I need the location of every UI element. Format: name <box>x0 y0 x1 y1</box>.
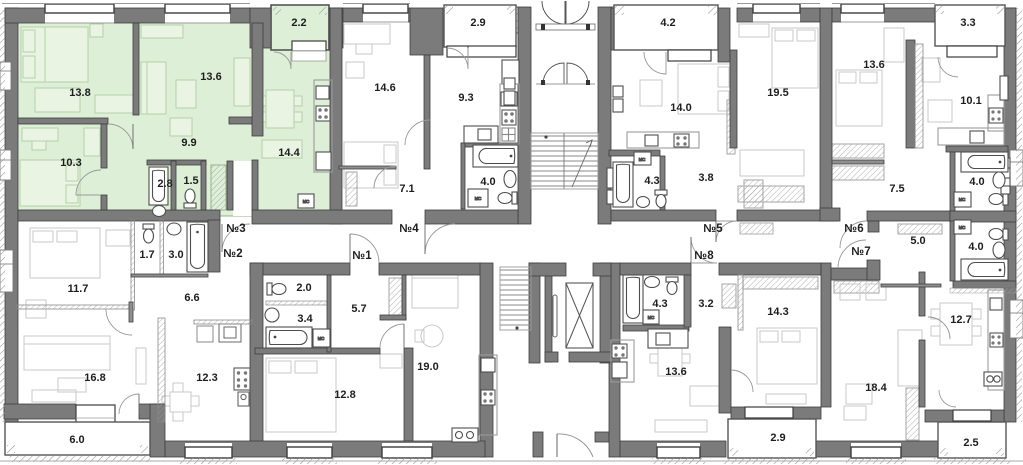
svg-text:10.3: 10.3 <box>60 157 81 169</box>
svg-text:№7: №7 <box>851 246 870 258</box>
svg-text:19.5: 19.5 <box>767 87 788 99</box>
svg-text:МС: МС <box>648 315 655 320</box>
svg-text:МС: МС <box>959 197 966 202</box>
svg-text:1.7: 1.7 <box>139 249 154 261</box>
svg-text:6.6: 6.6 <box>184 292 199 304</box>
svg-text:4.0: 4.0 <box>969 176 984 188</box>
svg-text:13.6: 13.6 <box>200 71 221 83</box>
svg-text:№8: №8 <box>694 250 714 262</box>
svg-text:11.7: 11.7 <box>68 283 89 295</box>
svg-text:2.0: 2.0 <box>296 282 311 294</box>
svg-text:МС: МС <box>303 199 310 204</box>
svg-text:7.5: 7.5 <box>889 183 904 195</box>
svg-text:14.4: 14.4 <box>278 147 300 159</box>
svg-text:12.7: 12.7 <box>950 314 971 326</box>
svg-text:3.2: 3.2 <box>698 298 713 310</box>
svg-text:2.8: 2.8 <box>157 178 172 190</box>
svg-text:9.3: 9.3 <box>458 92 473 104</box>
svg-text:МС: МС <box>318 336 325 341</box>
svg-text:14.3: 14.3 <box>767 306 788 318</box>
svg-text:4.0: 4.0 <box>480 176 495 188</box>
svg-text:19.0: 19.0 <box>417 361 438 373</box>
svg-text:№3: №3 <box>226 223 245 235</box>
svg-text:13.6: 13.6 <box>665 366 686 378</box>
svg-text:МС: МС <box>475 196 482 201</box>
svg-text:4.3: 4.3 <box>644 175 659 187</box>
svg-text:№6: №6 <box>844 223 863 235</box>
svg-text:3.8: 3.8 <box>698 172 713 184</box>
svg-text:2.2: 2.2 <box>291 17 306 29</box>
svg-text:18.4: 18.4 <box>865 382 887 394</box>
svg-text:14.0: 14.0 <box>670 102 691 114</box>
svg-text:7.1: 7.1 <box>399 183 414 195</box>
svg-text:13.6: 13.6 <box>863 59 884 71</box>
svg-text:9.9: 9.9 <box>181 137 196 149</box>
svg-text:№2: №2 <box>223 248 242 260</box>
svg-text:5.0: 5.0 <box>910 235 925 247</box>
svg-text:4.3: 4.3 <box>652 298 667 310</box>
svg-text:2.9: 2.9 <box>470 17 485 29</box>
svg-text:МС: МС <box>959 225 966 230</box>
svg-text:4.0: 4.0 <box>968 241 983 253</box>
svg-text:5.7: 5.7 <box>351 303 366 315</box>
svg-text:14.6: 14.6 <box>374 82 395 94</box>
svg-text:2.9: 2.9 <box>770 432 785 444</box>
svg-text:13.8: 13.8 <box>69 87 90 99</box>
svg-text:1.5: 1.5 <box>183 175 198 187</box>
svg-text:2.5: 2.5 <box>963 437 978 449</box>
svg-text:№5: №5 <box>703 223 723 235</box>
svg-text:3.0: 3.0 <box>168 249 183 261</box>
svg-text:3.3: 3.3 <box>960 17 975 29</box>
svg-text:10.1: 10.1 <box>960 95 981 107</box>
svg-text:16.8: 16.8 <box>84 372 105 384</box>
svg-text:4.2: 4.2 <box>660 17 675 29</box>
svg-text:3.4: 3.4 <box>297 313 313 325</box>
svg-text:№1: №1 <box>352 250 372 262</box>
svg-text:12.8: 12.8 <box>334 389 355 401</box>
svg-text:12.3: 12.3 <box>196 372 217 384</box>
svg-text:6.0: 6.0 <box>69 434 84 446</box>
svg-text:№4: №4 <box>399 223 419 235</box>
svg-text:МС: МС <box>639 157 646 162</box>
